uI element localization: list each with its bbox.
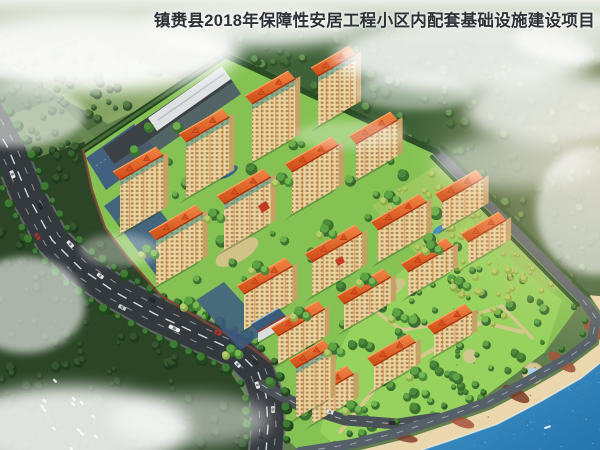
project-title: 镇赉县2018年保障性安居工程小区内配套基础设施建设项目 [154,7,595,31]
architectural-rendering: 镇赉县2018年保障性安居工程小区内配套基础设施建设项目 [0,0,600,450]
scene-svg [0,0,600,450]
